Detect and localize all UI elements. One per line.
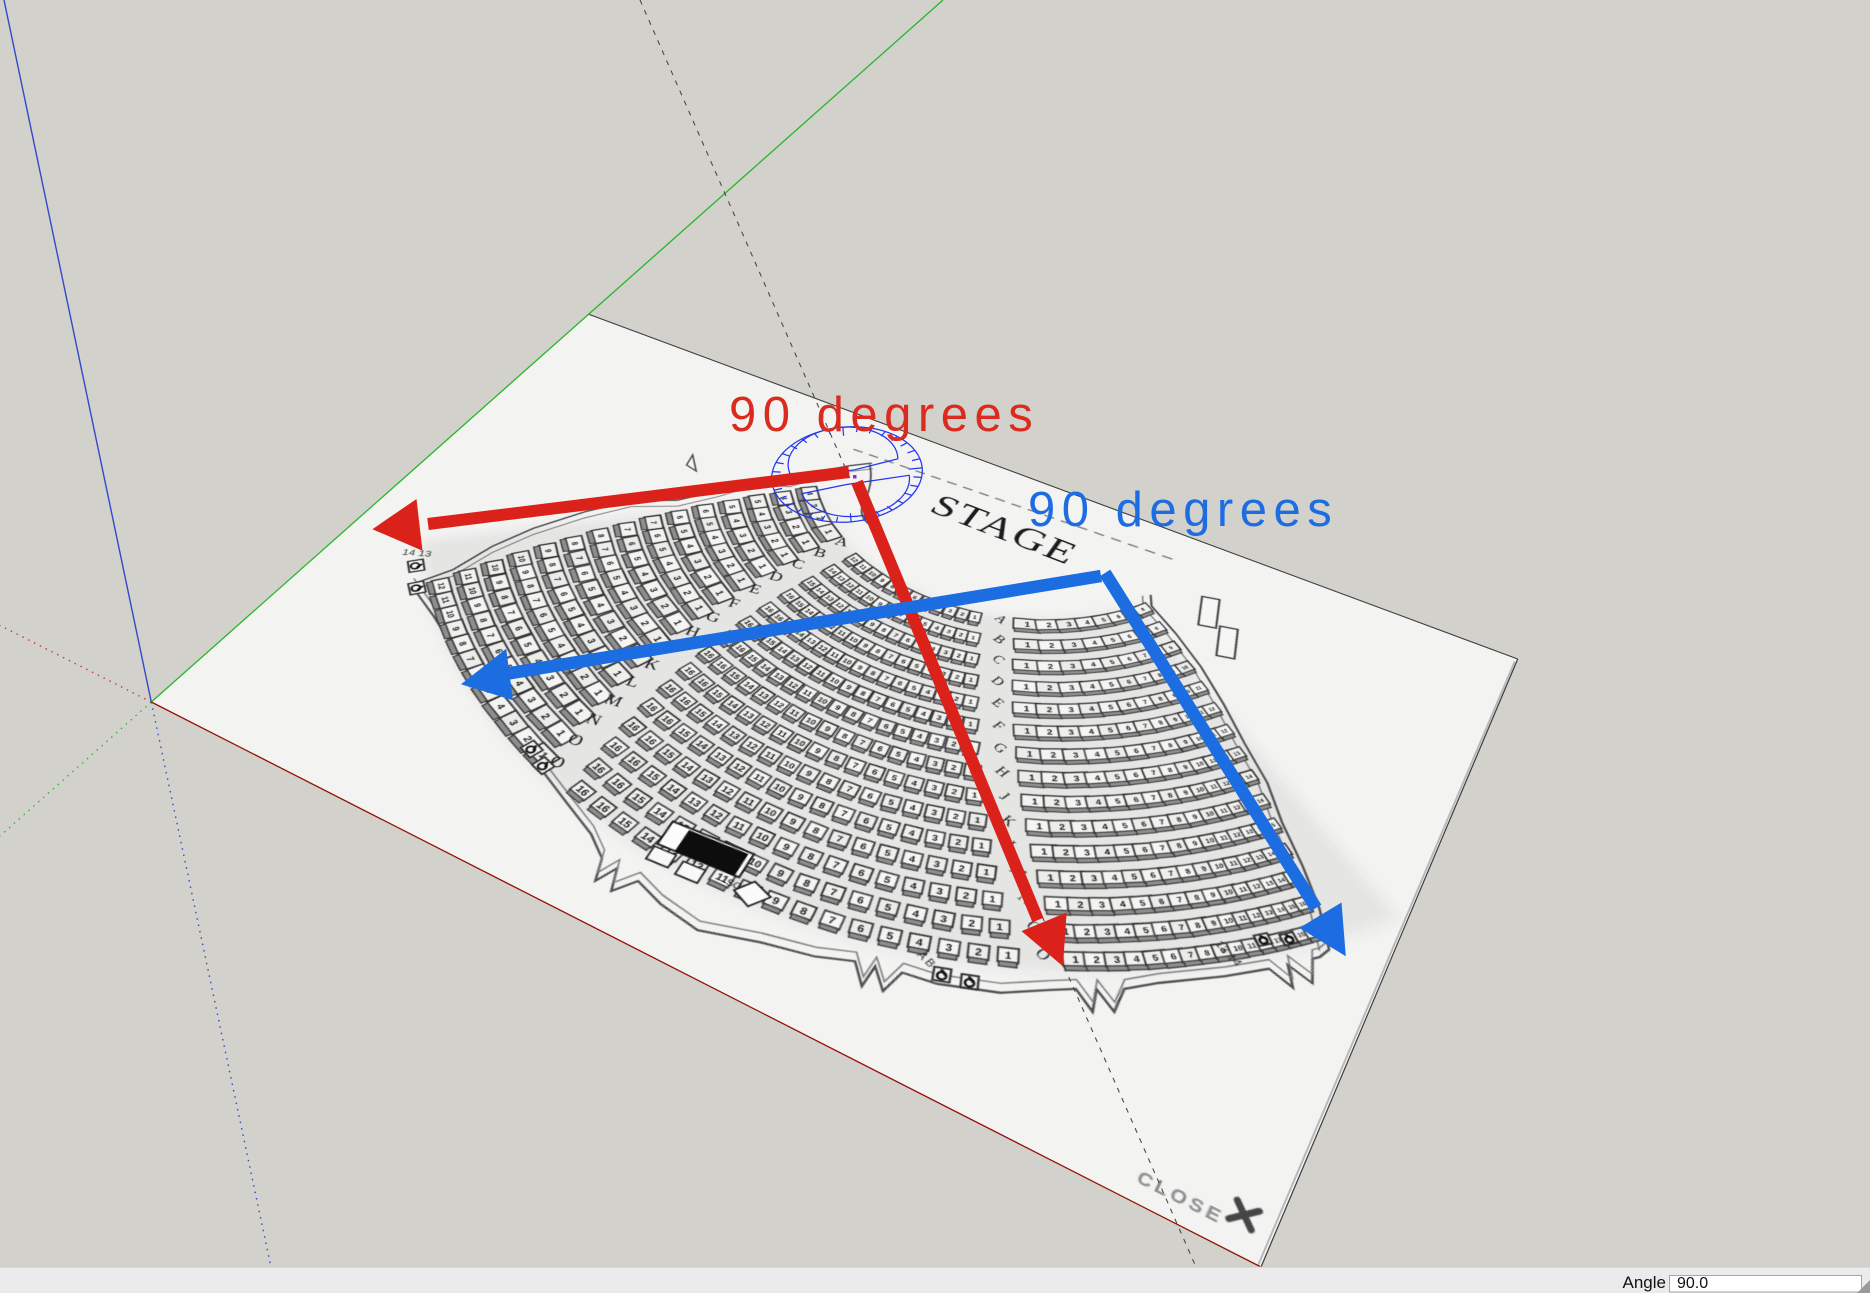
svg-text:Angle: Angle bbox=[1623, 1273, 1666, 1292]
svg-text:90 degrees: 90 degrees bbox=[729, 388, 1039, 442]
svg-text:90.0: 90.0 bbox=[1677, 1275, 1708, 1292]
svg-text:90 degrees: 90 degrees bbox=[1028, 483, 1338, 537]
